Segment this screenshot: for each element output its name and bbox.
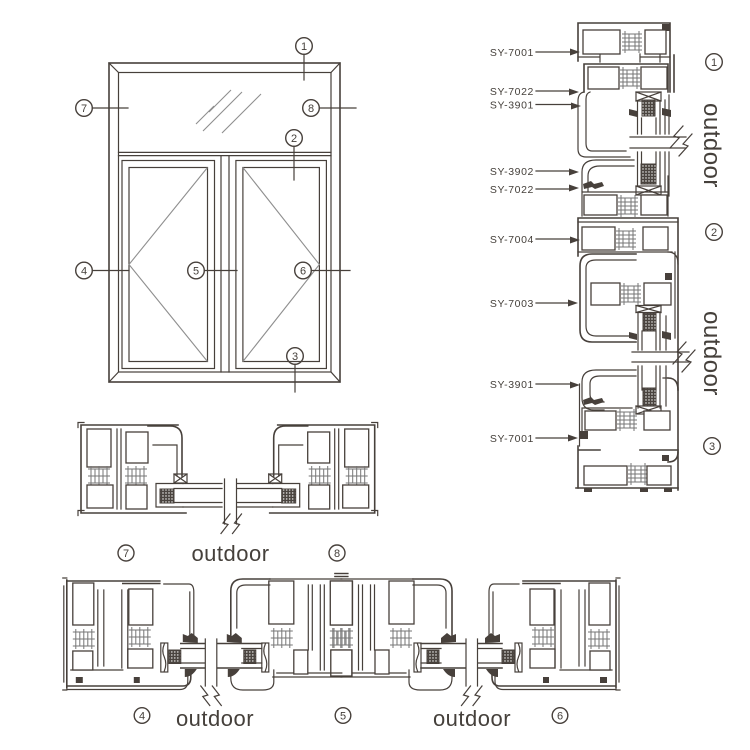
svg-text:SY-3901: SY-3901	[490, 100, 534, 112]
svg-text:8: 8	[334, 548, 340, 560]
svg-text:outdoor: outdoor	[176, 706, 254, 731]
svg-text:SY-3902: SY-3902	[490, 166, 534, 178]
svg-text:SY-7022: SY-7022	[490, 184, 534, 196]
svg-text:SY-7001: SY-7001	[490, 433, 534, 445]
svg-text:5: 5	[340, 711, 346, 723]
svg-text:6: 6	[557, 711, 563, 723]
svg-text:8: 8	[308, 103, 314, 115]
svg-text:3: 3	[709, 441, 715, 453]
svg-text:outdoor: outdoor	[698, 103, 725, 188]
svg-text:4: 4	[81, 266, 87, 278]
svg-text:2: 2	[291, 133, 297, 145]
svg-text:SY-7004: SY-7004	[490, 234, 534, 246]
svg-text:outdoor: outdoor	[433, 706, 511, 731]
svg-text:7: 7	[123, 548, 129, 560]
svg-text:1: 1	[711, 57, 717, 69]
svg-text:outdoor: outdoor	[191, 541, 269, 566]
svg-text:SY-7022: SY-7022	[490, 86, 534, 98]
svg-text:1: 1	[301, 41, 307, 53]
svg-text:SY-7001: SY-7001	[490, 47, 534, 59]
svg-text:2: 2	[711, 227, 717, 239]
svg-text:SY-7003: SY-7003	[490, 298, 534, 310]
svg-text:4: 4	[139, 711, 145, 723]
svg-text:outdoor: outdoor	[698, 311, 725, 396]
svg-text:3: 3	[292, 351, 298, 363]
svg-text:6: 6	[300, 266, 306, 278]
svg-text:SY-3901: SY-3901	[490, 379, 534, 391]
svg-text:5: 5	[193, 266, 199, 278]
svg-text:7: 7	[81, 103, 87, 115]
